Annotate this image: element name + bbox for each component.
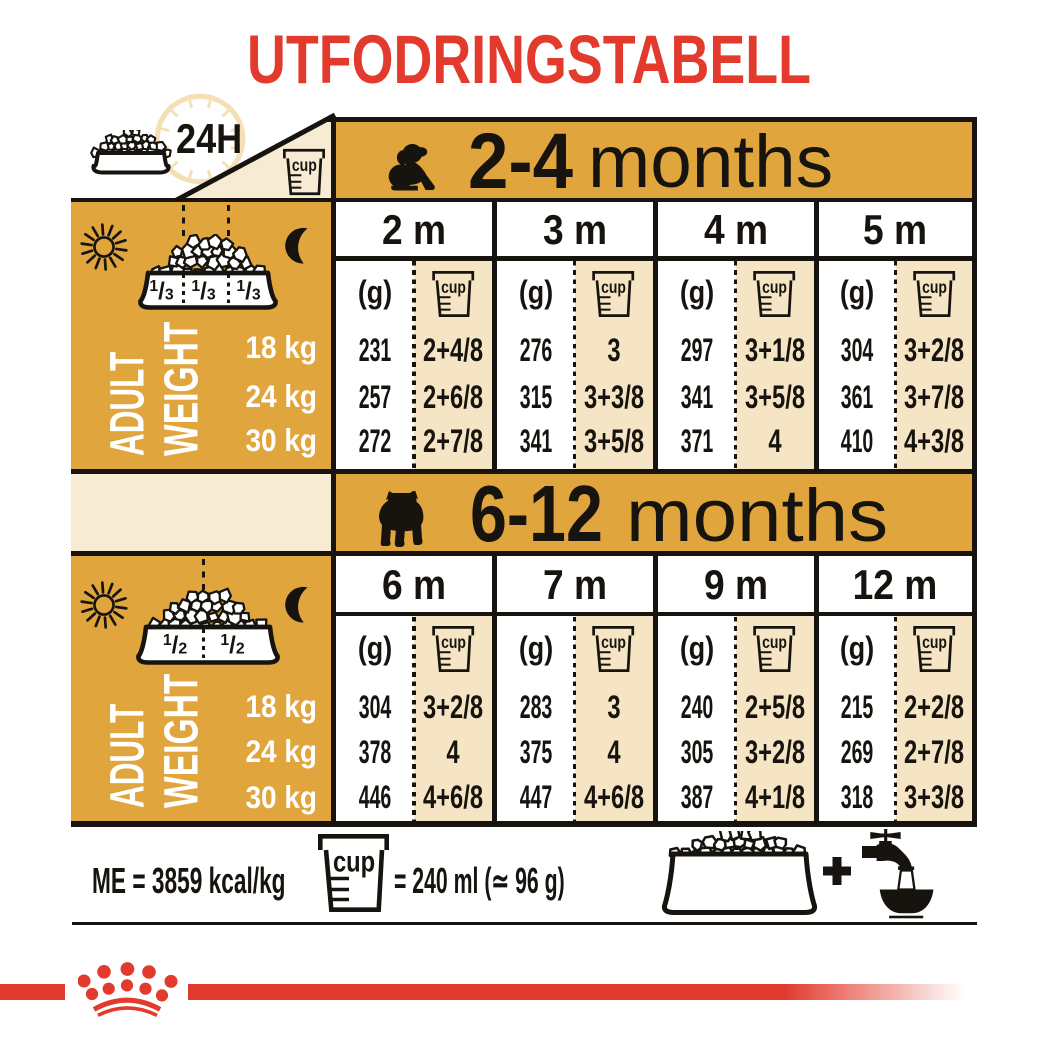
svg-text:WEIGHT: WEIGHT <box>161 321 208 455</box>
svg-text:ADULT: ADULT <box>107 703 154 807</box>
svg-text:cup: cup <box>922 279 947 298</box>
svg-text:cup: cup <box>601 279 626 298</box>
svg-text:cup: cup <box>762 633 787 652</box>
svg-text:WEIGHT: WEIGHT <box>161 673 208 807</box>
svg-text:cup: cup <box>292 157 317 176</box>
svg-text:cup: cup <box>762 279 787 298</box>
svg-text:cup: cup <box>333 845 375 878</box>
svg-text:cup: cup <box>601 633 626 652</box>
svg-text:cup: cup <box>441 279 466 298</box>
svg-text:cup: cup <box>441 633 466 652</box>
svg-text:cup: cup <box>922 633 947 652</box>
svg-text:ADULT: ADULT <box>107 351 154 455</box>
